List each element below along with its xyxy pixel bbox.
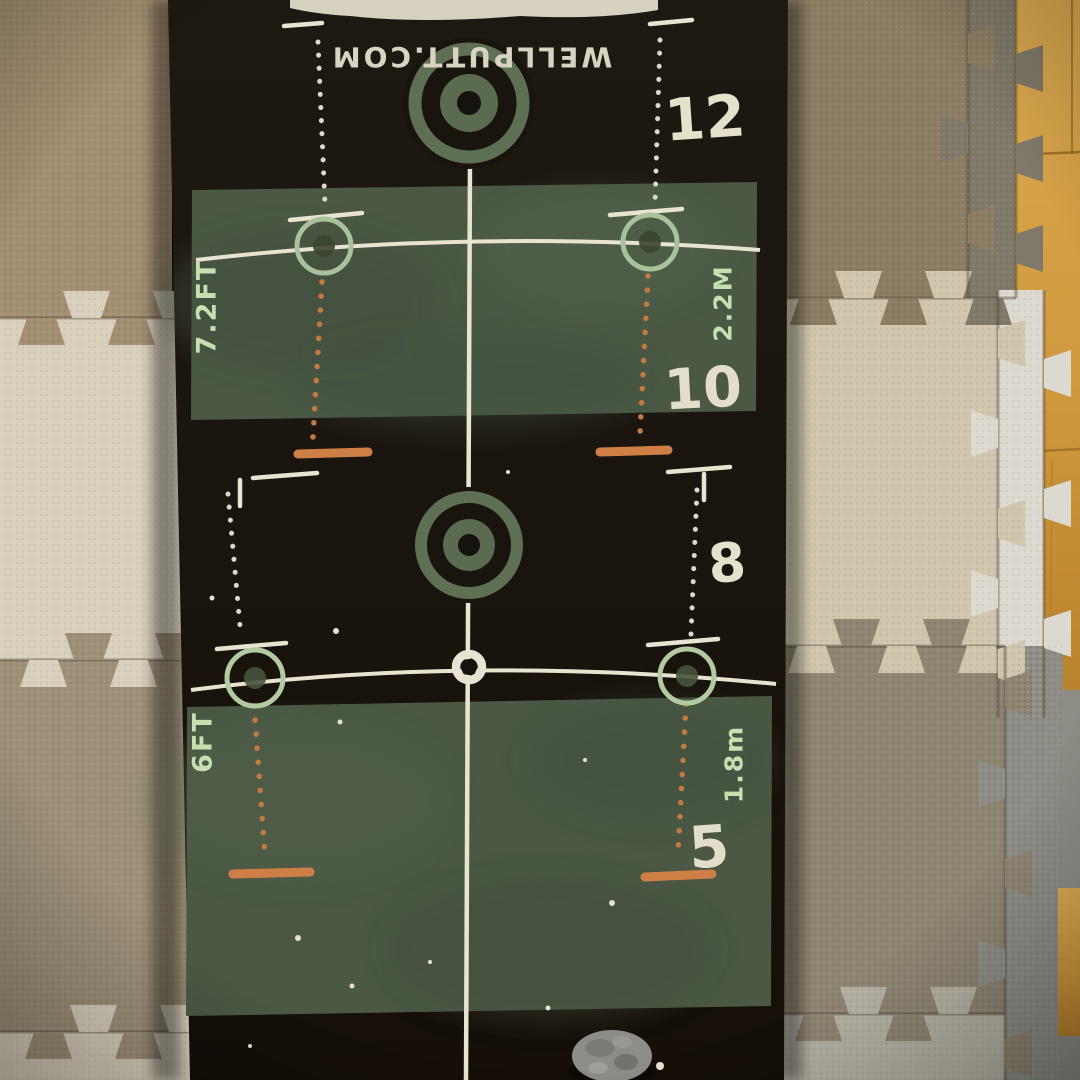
putting-mat-photo-scene: WELLPUTT.COM 12 10 8 5 7.2FT 2.2M 6FT 1.… [0,0,1080,1080]
photo-vignette [0,0,1080,1080]
photo-canvas: WELLPUTT.COM 12 10 8 5 7.2FT 2.2M 6FT 1.… [0,0,1080,1080]
